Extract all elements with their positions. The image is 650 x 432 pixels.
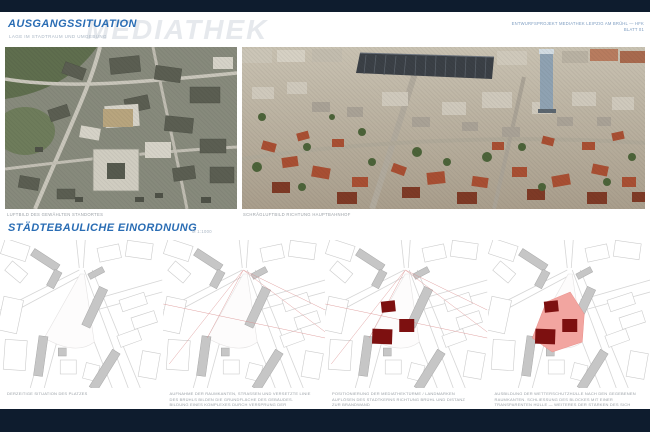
site-plan-drawing bbox=[325, 240, 488, 388]
project-meta-line2: BLATT 01 bbox=[512, 27, 644, 33]
section-title-urban-context: STÄDTEBAULICHE EINORDNUNG bbox=[8, 222, 197, 234]
site-plan-2-edges bbox=[163, 240, 326, 388]
site-plan-1-existing bbox=[0, 240, 163, 388]
satellite-photo-graphic bbox=[5, 47, 237, 209]
site-plan-drawing bbox=[163, 240, 326, 388]
bottom-border-bar bbox=[0, 409, 650, 432]
site-plan-sequence bbox=[0, 240, 650, 388]
satellite-photo-site bbox=[5, 47, 237, 209]
section-scale-note: M 1:1000 bbox=[192, 229, 212, 234]
site-plan-4-envelope bbox=[488, 240, 650, 388]
site-plan-drawing bbox=[488, 240, 650, 388]
site-plan-drawing bbox=[0, 240, 163, 388]
oblique-aerial-graphic bbox=[242, 47, 645, 209]
left-photo-caption: LUFTBILD DES GEWÄHLTEN STANDORTES bbox=[7, 212, 103, 217]
project-meta: ENTWURFSPROJEKT MEDIATHEK LEIPZIG AM BRÜ… bbox=[512, 21, 644, 34]
page-subtitle: LAGE IM STADTRAUM UND UMGEBUNG bbox=[9, 34, 107, 39]
right-photo-caption: SCHRÄGLUFTBILD RICHTUNG HAUPTBAHNHOF bbox=[243, 212, 351, 217]
site-plan-3-towers bbox=[325, 240, 488, 388]
page-title: AUSGANGSSITUATION bbox=[8, 18, 137, 30]
top-border-bar bbox=[0, 0, 650, 12]
oblique-aerial-photo bbox=[242, 47, 645, 209]
